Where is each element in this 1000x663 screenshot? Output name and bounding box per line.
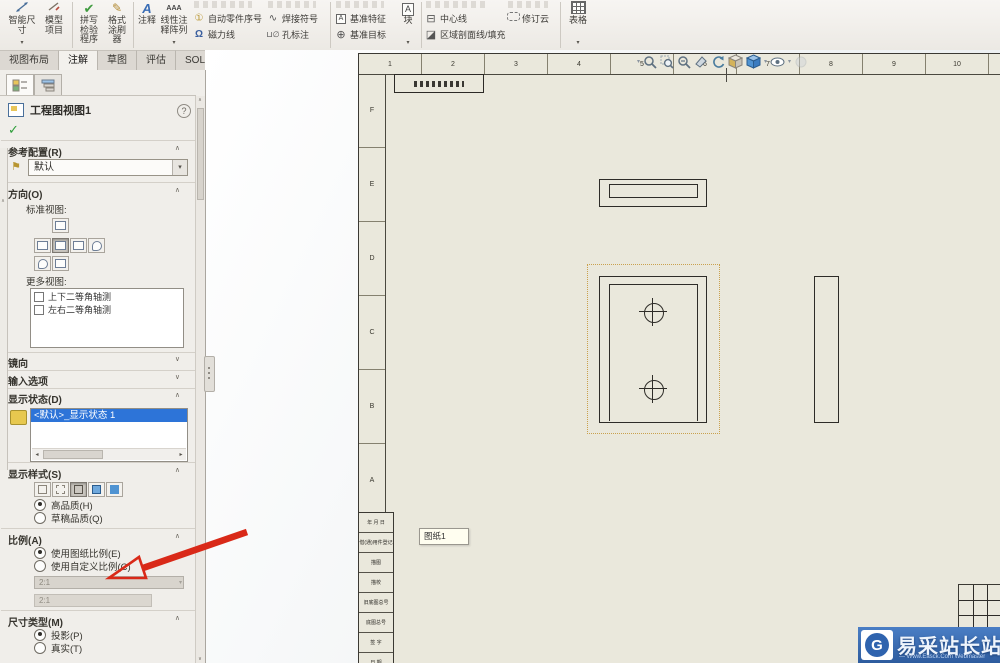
display-state-item-label: <默认>_显示状态 1 (34, 410, 115, 421)
weld-symbol-label: 焊接符号 (282, 12, 318, 25)
display-style-button[interactable] (88, 482, 105, 497)
datum-feature-icon: A (334, 12, 348, 24)
scale-radio-label: 使用自定义比例(C) (51, 559, 131, 573)
toolbar-separator (133, 2, 134, 48)
smart-dimension-label: 智能尺寸 (6, 16, 38, 35)
zone-letter-cell: D (359, 222, 385, 296)
collapse-icon[interactable]: ∧ (175, 144, 180, 152)
format-painter-button[interactable]: ✎ 格式涂刷器 (104, 1, 130, 48)
section-divider (1, 462, 196, 463)
scale-combobox-disabled[interactable]: 2:1 ▾ (34, 576, 184, 589)
more-views-label: 更多视图: (26, 274, 67, 288)
section-view-icon[interactable] (694, 55, 708, 69)
graphics-area[interactable]: 1 2 3 4 5 (205, 50, 1000, 663)
section-divider (1, 388, 196, 389)
solidworks-window: 智能尺寸 ▾ 模型项目 ✔ 拼写检验程序 ✎ 格式涂刷器 A 注释 AAA 线性… (0, 0, 1000, 663)
border-table-row-text: 日 期 (370, 659, 381, 663)
auto-balloon-button[interactable]: ① 自动零件序号 (192, 10, 264, 26)
display-style-button[interactable] (34, 482, 51, 497)
section-label: 输入选项 (8, 377, 48, 388)
clipped-toolbar-row (336, 1, 384, 8)
svg-text:G: G (871, 637, 883, 654)
zone-letter: F (370, 107, 374, 114)
collapse-icon[interactable]: ∧ (175, 186, 180, 194)
centerline-group: ⊟ 中心线 ◪ 区域剖面线/填充 (424, 1, 504, 42)
clipped-toolbar-row (268, 1, 316, 8)
panel-header: 工程图视图1 (8, 102, 91, 118)
hole-circle-upper[interactable] (644, 303, 664, 323)
dimension-type-radio[interactable]: 真实(T) (30, 641, 83, 654)
zoom-fit-icon[interactable] (643, 55, 657, 69)
section-divider (1, 182, 196, 183)
configurations-icon (40, 79, 56, 92)
command-tab-label: 评估 (146, 55, 166, 66)
view-orientation-button[interactable] (34, 256, 51, 271)
display-style-button[interactable] (52, 482, 69, 497)
balloon-group: ① 自动零件序号 Ω 磁力线 (192, 1, 264, 42)
zone-number-cell: 10 (926, 54, 989, 74)
zone-letter-cell: E (359, 148, 385, 222)
scroll-right-icon[interactable]: ▸ (176, 451, 186, 458)
clipped-toolbar-row (426, 1, 488, 8)
zone-number: 4 (577, 61, 581, 68)
zone-number-cell: 8 (800, 54, 863, 74)
configuration-value: 默认 (34, 162, 54, 173)
section-label: 方向(O) (8, 190, 42, 201)
zone-letter: D (369, 255, 374, 262)
scroll-down-icon[interactable]: ∨ (196, 656, 204, 662)
linear-note-pattern-label: 线性注释阵列 (159, 16, 189, 35)
format-painter-label: 格式涂刷器 (104, 16, 130, 45)
border-table-row: 签 字 (359, 633, 393, 653)
drawing-view-top-inner-edge (609, 184, 698, 198)
area-hatch-label: 区域剖面线/填充 (440, 28, 506, 41)
view-buttons-row1 (52, 218, 70, 233)
grid-line (959, 600, 1000, 601)
area-hatch-button[interactable]: ◪ 区域剖面线/填充 (424, 26, 504, 42)
scale-radio[interactable]: 使用图纸比例(E) (30, 546, 131, 559)
view-orientation-button[interactable] (70, 238, 87, 253)
datum-target-icon: ⊕ (334, 28, 348, 41)
chevron-down-icon[interactable]: ▾ (20, 39, 23, 49)
clipped-toolbar-row (508, 1, 548, 8)
radio-icon (34, 560, 46, 572)
hide-show-items-icon[interactable] (770, 56, 785, 68)
drawing-view-front[interactable] (599, 276, 707, 423)
sheet-tooltip: 图纸1 (419, 528, 469, 545)
watermark-tagline: — Www.Easck.Com Webmaster (899, 654, 985, 660)
hole-callout-label: 孔标注 (282, 28, 309, 41)
border-table-row-text: 年 月 日 (367, 519, 385, 526)
block-label: 块 (397, 16, 419, 26)
linear-note-pattern-icon: AAA (159, 1, 189, 16)
collapse-icon[interactable]: ∧ (175, 532, 180, 540)
display-state-icon (10, 410, 27, 425)
zone-number-cell: 3 (485, 54, 548, 74)
section-orientation[interactable]: 方向(O) ∧ (8, 186, 186, 199)
scrollbar-thumb[interactable] (43, 450, 103, 459)
more-views-list: 上下二等角轴测 左右二等角轴测 (30, 288, 184, 348)
front-view-inner-edge-top (609, 284, 698, 285)
expand-icon[interactable]: ∨ (175, 373, 180, 381)
annotation-toolbar: 智能尺寸 ▾ 模型项目 ✔ 拼写检验程序 ✎ 格式涂刷器 A 注释 AAA 线性… (0, 0, 1000, 51)
zone-letter-cell: C (359, 296, 385, 370)
weld-symbol-icon: ∿ (266, 13, 280, 24)
dimension-type-radio-label: 投影(P) (51, 628, 83, 642)
section-mirror[interactable]: 镜向 ∨ (8, 355, 186, 368)
zone-number: 8 (829, 61, 833, 68)
scale-radio-group: 使用图纸比例(E) 使用自定义比例(C) (30, 546, 131, 572)
collapse-icon[interactable]: ∧ (175, 614, 180, 622)
section-label: 镜向 (8, 359, 28, 370)
chevron-down-icon[interactable]: ▾ (764, 58, 767, 65)
view-buttons-row2 (34, 238, 106, 253)
clipped-toolbar-row (194, 1, 252, 8)
border-table-row: 日 期 (359, 653, 393, 663)
linear-note-pattern-button[interactable]: AAA 线性注释阵列 ▾ (159, 1, 189, 48)
block-icon: A (397, 1, 419, 16)
chevron-down-icon[interactable]: ▾ (172, 160, 187, 175)
grid-line (959, 615, 1000, 616)
section-divider (1, 352, 196, 353)
border-table-row: 底图总号 (359, 613, 393, 633)
heads-up-toolbar: ▾ ▾ ▾ (637, 54, 808, 69)
format-painter-icon: ✎ (104, 1, 130, 16)
auto-balloon-label: 自动零件序号 (208, 12, 262, 25)
zone-number: 9 (892, 61, 896, 68)
view-orientation-button[interactable] (52, 238, 69, 253)
command-tab[interactable]: 视图布局 (0, 50, 59, 70)
note-icon: A (136, 1, 158, 16)
drawing-view-icon (8, 103, 24, 117)
collapse-icon[interactable]: ∧ (175, 391, 180, 399)
display-style-buttons (34, 482, 124, 497)
note-button[interactable]: A 注释 (136, 1, 158, 48)
border-table-row: 描图 (359, 553, 393, 573)
drawing-view-side[interactable] (814, 276, 839, 423)
datum-group: A 基准特征 ⊕ 基准目标 (334, 1, 394, 42)
table-button[interactable]: 表格 ▾ (564, 1, 592, 48)
view-orientation-button[interactable] (88, 238, 105, 253)
radio-icon (34, 512, 46, 524)
border-table-row: 旧底图总号 (359, 593, 393, 613)
section-label: 参考配置(R) (8, 148, 62, 159)
view-orientation-button[interactable] (52, 218, 69, 233)
revision-cloud-icon (506, 12, 520, 24)
custom-scale-value: 2:1 (39, 596, 50, 605)
checkbox[interactable] (34, 292, 44, 302)
chevron-down-icon: ▾ (179, 577, 182, 589)
grid-line (987, 585, 988, 630)
section-label: 显示状态(D) (8, 395, 62, 406)
sheet-zone-letters: F E D C B (359, 74, 386, 512)
border-table-row-text: 描图 (371, 559, 381, 566)
chevron-down-icon[interactable]: ▾ (576, 39, 579, 49)
property-manager-panel: 工程图视图1 ? ✓ 参考配置(R) ∧ ⚑ 默认 ▾ 方向(O) ∧ 标准视图… (0, 70, 206, 663)
revision-cloud-group: 修订云 (506, 1, 558, 26)
section-import-options[interactable]: 输入选项 ∨ (8, 373, 186, 386)
model-items-button[interactable]: 模型项目 (40, 1, 68, 48)
zone-letter: E (370, 181, 375, 188)
front-view-inner-edge-right (697, 284, 698, 421)
toolbar-separator (560, 2, 561, 48)
section-divider (1, 528, 196, 529)
scale-radio[interactable]: 使用自定义比例(C) (30, 559, 131, 572)
front-view-inner-edge-left (609, 284, 610, 421)
watermark-logo: G (861, 630, 893, 660)
watermark-banner: G 易采站长站 — Www.Easck.Com Webmaster (858, 627, 1000, 663)
zone-number-cell: 2 (422, 54, 485, 74)
hole-circle-lower[interactable] (644, 380, 664, 400)
auto-balloon-icon: ① (192, 13, 206, 24)
configuration-flag-icon: ⚑ (11, 160, 21, 173)
more-views-item-label: 上下二等角轴测 (48, 290, 111, 303)
zone-number-cell: 1 (359, 54, 422, 74)
tab-configurations[interactable] (34, 74, 62, 96)
sheet-border-table: 年 月 日 借(通)用件登记 描图 描校 旧底图总号 (359, 512, 394, 663)
section-divider (1, 140, 196, 141)
border-table-row-text: 底图总号 (366, 619, 386, 626)
scale-combo-value: 2:1 (39, 578, 50, 587)
more-views-item[interactable]: 上下二等角轴测 (31, 291, 183, 302)
area-hatch-icon: ◪ (424, 28, 438, 41)
model-items-icon (40, 1, 68, 16)
toolbar-separator (330, 2, 331, 48)
display-state-item[interactable]: <默认>_显示状态 1 (31, 409, 187, 422)
rotate-view-icon[interactable] (711, 55, 725, 69)
revision-cloud-label: 修订云 (522, 12, 549, 25)
command-tab-label: 视图布局 (9, 55, 49, 66)
scale-radio-label: 使用图纸比例(E) (51, 546, 121, 560)
chevron-up-icon: ∧ (0, 198, 6, 204)
sketch-line-fragment (726, 68, 727, 82)
spell-checker-icon: ✔ (76, 1, 102, 16)
magnetic-line-label: 磁力线 (208, 28, 235, 41)
drawing-sheet[interactable]: 1 2 3 4 5 (358, 53, 1000, 663)
note-label: 注释 (136, 16, 158, 26)
border-table-row-text: 签 字 (370, 639, 381, 646)
section-divider (1, 370, 196, 371)
chevron-down-icon[interactable]: ▾ (788, 58, 791, 65)
property-manager-icon (12, 79, 28, 92)
spell-checker-label: 拼写检验程序 (76, 16, 102, 45)
dimension-type-radio-label: 真实(T) (51, 641, 82, 655)
hole-callout-button[interactable]: ⊔∅ 孔标注 (266, 26, 324, 42)
chevron-down-icon[interactable]: ▾ (637, 58, 640, 65)
checkbox[interactable] (34, 305, 44, 315)
display-state-list: ◂ ▸ <默认>_显示状态 1 (30, 408, 188, 462)
sheet-title-box (394, 74, 484, 93)
command-tab[interactable]: 注解 (59, 50, 98, 70)
tab-property-manager[interactable] (6, 74, 34, 96)
panel-title: 工程图视图1 (30, 102, 91, 118)
configuration-combobox[interactable]: 默认 ▾ (28, 159, 188, 176)
border-table-row-text: 借(通)用件登记 (359, 539, 392, 546)
command-tab[interactable]: 草图 (98, 50, 137, 70)
view-orientation-icon[interactable] (728, 54, 743, 69)
title-block-grid (958, 584, 1000, 631)
magnetic-line-icon: Ω (192, 29, 206, 40)
grid-line (973, 585, 974, 630)
panel-splitter-handle[interactable] (204, 356, 215, 392)
weld-group: ∿ 焊接符号 ⊔∅ 孔标注 (266, 1, 324, 42)
standard-views-label: 标准视图: (26, 202, 67, 216)
zone-number: 2 (451, 61, 455, 68)
zone-letter-cell: A (359, 444, 385, 518)
quality-radio-group: 高品质(H) 草稿品质(Q) (30, 498, 103, 524)
radio-icon (34, 547, 46, 559)
section-scale[interactable]: 比例(A) ∧ (8, 532, 186, 545)
section-divider (1, 610, 196, 611)
ok-check-icon[interactable]: ✓ (8, 122, 19, 138)
dimension-type-radio[interactable]: 投影(P) (30, 628, 83, 641)
section-dimension-type[interactable]: 尺寸类型(M) ∧ (8, 614, 186, 627)
center-mark-vertical (652, 375, 653, 403)
more-views-item-label: 左右二等角轴测 (48, 303, 111, 316)
revision-cloud-button[interactable]: 修订云 (506, 10, 558, 26)
section-label: 显示样式(S) (8, 470, 61, 481)
more-views-item[interactable]: 左右二等角轴测 (31, 304, 183, 315)
quality-radio[interactable]: 高品质(H) (30, 498, 103, 511)
border-table-row: 年 月 日 (359, 513, 393, 533)
datum-target-label: 基准目标 (350, 28, 386, 41)
zone-number-cell: 4 (548, 54, 611, 74)
zoom-area-icon[interactable] (660, 55, 674, 69)
border-table-row: 借(通)用件登记 (359, 533, 393, 553)
weld-symbol-button[interactable]: ∿ 焊接符号 (266, 10, 324, 26)
command-tab[interactable]: 评估 (137, 50, 176, 70)
datum-feature-label: 基准特征 (350, 12, 386, 25)
centerline-label: 中心线 (440, 12, 467, 25)
view-buttons-row3 (34, 256, 70, 271)
toolbar-separator (421, 2, 422, 48)
hole-callout-icon: ⊔∅ (266, 30, 280, 39)
center-mark-vertical (652, 298, 653, 326)
collapse-icon[interactable]: ∧ (175, 466, 180, 474)
model-items-label: 模型项目 (40, 16, 68, 35)
smart-dimension-icon (6, 1, 38, 16)
help-icon[interactable]: ? (177, 104, 191, 118)
section-display-state[interactable]: 显示状态(D) ∧ (8, 391, 186, 404)
border-table-row-text: 旧底图总号 (363, 599, 388, 606)
quality-radio[interactable]: 草稿品质(Q) (30, 511, 103, 524)
command-tab-label: 注解 (68, 55, 88, 66)
easck-logo-icon: G (864, 632, 890, 658)
table-label: 表格 (564, 16, 592, 26)
expand-icon[interactable]: ∨ (175, 355, 180, 363)
radio-icon (34, 499, 46, 511)
centerline-icon: ⊟ (424, 12, 438, 25)
scrollbar-thumb[interactable] (197, 108, 204, 200)
toolbar-separator (72, 2, 73, 48)
centerline-button[interactable]: ⊟ 中心线 (424, 10, 504, 26)
zone-letter: C (369, 329, 374, 336)
section-display-style[interactable]: 显示样式(S) ∧ (8, 466, 186, 479)
datum-target-button[interactable]: ⊕ 基准目标 (334, 26, 394, 42)
center-mark-horizontal (639, 388, 667, 389)
block-button[interactable]: A 块 ▾ (397, 1, 419, 48)
zone-letter-cell: F (359, 74, 385, 148)
scroll-up-icon[interactable]: ∧ (196, 97, 204, 103)
dimension-type-radio-group: 投影(P) 真实(T) (30, 628, 83, 654)
command-tab-label: 草图 (107, 55, 127, 66)
section-reference-config[interactable]: 参考配置(R) ∧ (8, 144, 186, 157)
zone-number: 10 (953, 61, 961, 68)
chevron-down-icon[interactable]: ▾ (406, 39, 409, 49)
display-style-icon[interactable] (746, 54, 761, 69)
view-orientation-button[interactable] (52, 256, 69, 271)
smart-dimension-button[interactable]: 智能尺寸 ▾ (6, 1, 38, 48)
quality-radio-label: 高品质(H) (51, 498, 93, 512)
panel-divider (0, 95, 196, 96)
datum-feature-button[interactable]: A 基准特征 (334, 10, 394, 26)
collapsed-feature-tree-strip[interactable]: ∧ (0, 148, 8, 470)
view-orientation-button[interactable] (34, 238, 51, 253)
display-style-button[interactable] (70, 482, 87, 497)
center-mark-horizontal (639, 311, 667, 312)
zone-letter: A (370, 477, 375, 484)
horizontal-scrollbar[interactable]: ◂ ▸ (32, 448, 186, 460)
zone-number: 3 (514, 61, 518, 68)
quality-radio-label: 草稿品质(Q) (51, 511, 103, 525)
zone-number-cell: 9 (863, 54, 926, 74)
zoom-in-out-icon[interactable] (677, 55, 691, 69)
radio-icon (34, 642, 46, 654)
zone-letter-cell: B (359, 370, 385, 444)
table-icon (564, 1, 592, 16)
zone-letter: B (370, 403, 375, 410)
scroll-left-icon[interactable]: ◂ (32, 451, 42, 458)
chevron-down-icon[interactable]: ▾ (172, 39, 175, 49)
radio-icon (34, 629, 46, 641)
display-style-button[interactable] (106, 482, 123, 497)
custom-scale-input-disabled[interactable]: 2:1 (34, 594, 152, 607)
zone-number: 1 (388, 61, 392, 68)
sheet-tooltip-text: 图纸1 (424, 531, 446, 541)
magnetic-line-button[interactable]: Ω 磁力线 (192, 26, 264, 42)
border-table-row-text: 描校 (371, 579, 381, 586)
appearance-icon[interactable] (794, 55, 808, 69)
spell-checker-button[interactable]: ✔ 拼写检验程序 (76, 1, 102, 48)
sheet-title-box-text (414, 81, 464, 87)
border-table-row: 描校 (359, 573, 393, 593)
